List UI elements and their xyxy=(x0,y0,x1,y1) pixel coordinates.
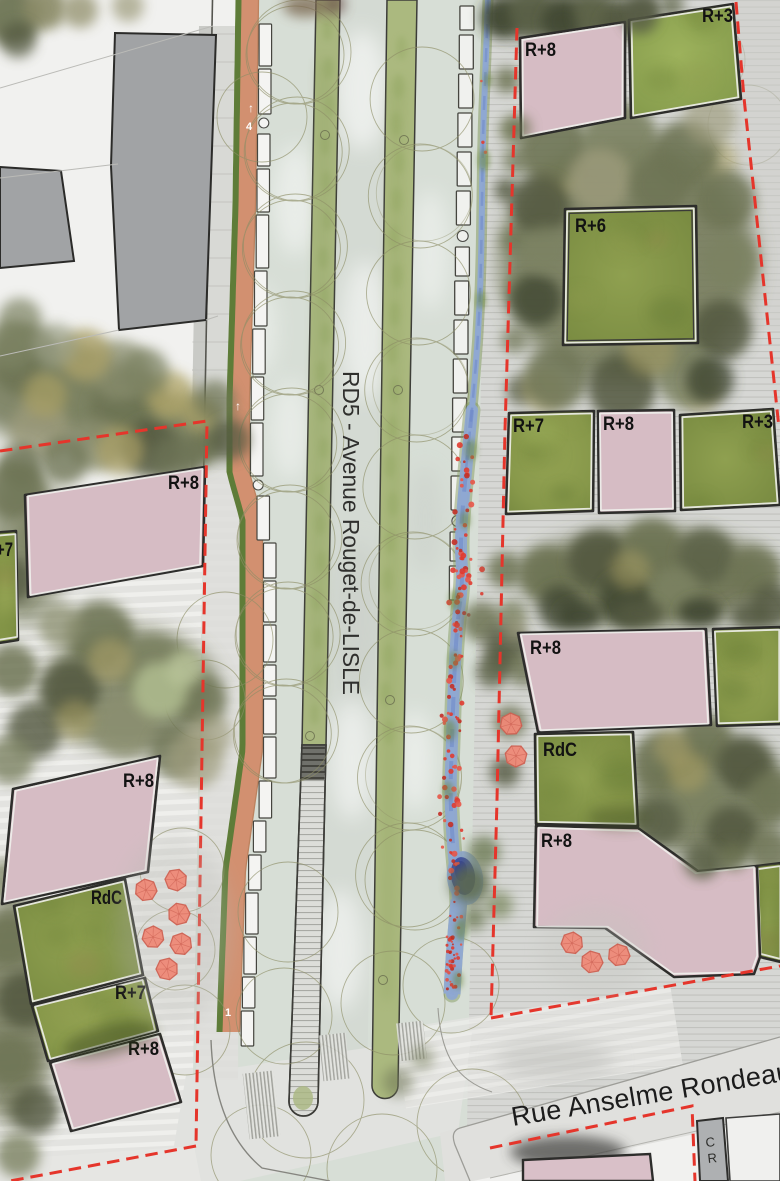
svg-text:1: 1 xyxy=(225,1007,231,1019)
svg-text:↑: ↑ xyxy=(235,399,241,413)
svg-text:R+8: R+8 xyxy=(541,831,572,852)
svg-text:R+7: R+7 xyxy=(513,416,544,437)
svg-text:↑: ↑ xyxy=(248,101,254,115)
svg-text:R+8: R+8 xyxy=(168,473,199,494)
svg-text:R+8: R+8 xyxy=(123,771,154,792)
svg-text:RdC: RdC xyxy=(91,888,122,909)
svg-text:R+8: R+8 xyxy=(525,40,556,61)
svg-text:R+8: R+8 xyxy=(603,414,634,435)
svg-text:R+6: R+6 xyxy=(575,216,606,237)
svg-text:R+8: R+8 xyxy=(530,638,561,659)
svg-text:R+3: R+3 xyxy=(702,6,733,27)
svg-text:R+3: R+3 xyxy=(742,412,773,433)
svg-text:RdC: RdC xyxy=(543,740,577,761)
svg-text:4: 4 xyxy=(246,121,253,133)
svg-text:R: R xyxy=(707,1150,718,1166)
svg-text:+7: +7 xyxy=(0,540,13,561)
svg-text:C: C xyxy=(705,1134,716,1150)
svg-text:RD5 - Avenue Rouget-de-LISLE: RD5 - Avenue Rouget-de-LISLE xyxy=(338,371,364,695)
